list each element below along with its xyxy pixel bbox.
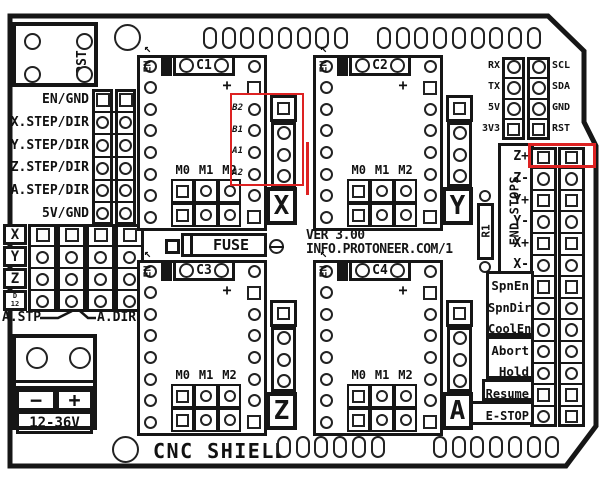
driver-C3-mode-label-M2: M2 bbox=[218, 369, 241, 381]
serial-cell-line bbox=[527, 77, 550, 79]
axis-label-box-X: X bbox=[266, 187, 297, 225]
endstop-label-X-: X- bbox=[500, 258, 529, 271]
endstop-cell-line bbox=[530, 275, 557, 277]
driver-C4-mode-pin bbox=[376, 390, 388, 402]
endstop-cell-line bbox=[530, 405, 557, 407]
endstop-label-X+: X+ bbox=[500, 237, 529, 250]
endstop-cell-line bbox=[558, 340, 585, 342]
pin-Y- bbox=[537, 215, 551, 229]
driver-C3-output-pin bbox=[277, 307, 290, 320]
driver-C1-pin-right bbox=[248, 189, 261, 202]
driver-C1-pin-right bbox=[247, 210, 261, 224]
mounting-hole-top bbox=[114, 24, 141, 51]
driver-C2-pin-left bbox=[320, 124, 333, 137]
jumper-cell-line bbox=[28, 267, 57, 269]
pin-CoolEn bbox=[537, 323, 551, 337]
reset-button-pad bbox=[24, 33, 41, 50]
reset-button-pad bbox=[24, 66, 41, 83]
power-terminal-block: − + 12-36V bbox=[12, 334, 97, 430]
pin-SpnEn bbox=[565, 280, 579, 294]
driver-C4-pin-right bbox=[424, 265, 437, 278]
driver-C3-mode-pin bbox=[200, 414, 212, 426]
jumper-pin bbox=[36, 295, 49, 308]
axis-label-box-Z: Z bbox=[266, 392, 297, 430]
driver-C3-header-bar: C3 bbox=[173, 260, 235, 281]
control-label-Hold: Hold bbox=[488, 366, 529, 379]
power-screw-terminal-1 bbox=[26, 347, 48, 369]
driver-header-pin bbox=[179, 263, 194, 278]
endstop-cell-line bbox=[558, 405, 585, 407]
control-label-E-STOP: E-STOP bbox=[470, 410, 529, 422]
driver-C4-output-pin bbox=[453, 353, 467, 367]
endstop-cell-line bbox=[530, 189, 557, 191]
driver-C1-enable-label: EN bbox=[139, 60, 158, 74]
jumper-row-label-Y: Y bbox=[3, 246, 27, 267]
driver-C3-output-pin bbox=[277, 374, 291, 388]
jumper-row-label-X: X bbox=[3, 224, 27, 245]
highlight-driver-c1-coil-pins bbox=[230, 93, 304, 186]
endstop-cell-line bbox=[530, 210, 557, 212]
driver-C2-output-pin bbox=[453, 102, 466, 115]
serial-label-RST: RST bbox=[552, 124, 584, 134]
driver-C2-mode-label-M0: M0 bbox=[347, 164, 370, 176]
solder-pad bbox=[471, 27, 485, 49]
driver-header-pin bbox=[214, 263, 229, 278]
jumper-pin bbox=[65, 228, 79, 242]
driver-C3-arrow-icon: ↖ bbox=[144, 247, 158, 259]
driver-C1-pin-left bbox=[144, 103, 157, 116]
jumper-row-label-Z: Z bbox=[3, 268, 27, 289]
control-label-SpnEn: SpnEn bbox=[488, 280, 529, 293]
solder-pad bbox=[545, 436, 559, 458]
endstop-cell-line bbox=[530, 254, 557, 256]
driver-C1-plus-label: + bbox=[219, 78, 235, 93]
mounting-hole-bottom bbox=[112, 436, 139, 463]
driver-C2-mode-pin bbox=[376, 209, 388, 221]
driver-id-label: C4 bbox=[372, 264, 388, 277]
driver-C4-pin-right bbox=[424, 373, 437, 386]
driver-C2-pin-left bbox=[320, 81, 333, 94]
driver-C4-output-pin bbox=[453, 331, 467, 345]
driver-C2-pin-right bbox=[424, 146, 437, 159]
solder-pad bbox=[508, 436, 522, 458]
driver-header-pin bbox=[355, 263, 370, 278]
cnc-shield-diagram: RST FUSE VER 3.00 INFO.PROTONEER.COM/1 −… bbox=[0, 0, 600, 500]
axis-label-box-A: A bbox=[442, 392, 473, 430]
driver-C3-pin-left bbox=[144, 351, 157, 364]
control-label-Resume: Resume bbox=[484, 388, 529, 400]
left-header-label-Z.STEP/DIR: Z.STEP/DIR bbox=[5, 161, 89, 174]
driver-C4-enable-label: EN bbox=[315, 265, 334, 279]
endstop-cell-line bbox=[558, 254, 585, 256]
driver-C2-header-bar: C2 bbox=[349, 55, 411, 76]
driver-C3-output-pin bbox=[277, 353, 291, 367]
jumper-cell-line bbox=[86, 267, 115, 269]
driver-header-pin bbox=[179, 58, 194, 73]
resistor-r1-label: R1 bbox=[480, 209, 492, 254]
serial-cell-line bbox=[527, 98, 550, 100]
driver-C2-pin-right bbox=[423, 210, 437, 224]
left-header-label-EN/GND: EN/GND bbox=[5, 93, 89, 106]
driver-C3-pin-left bbox=[144, 373, 157, 386]
board-title: CNC SHIELD bbox=[153, 441, 288, 461]
version-line1: VER 3.00 bbox=[306, 229, 453, 243]
driver-C2-pin-right bbox=[424, 189, 437, 202]
solder-pad bbox=[277, 436, 291, 458]
driver-C4-mode-label-M0: M0 bbox=[347, 369, 370, 381]
serial-label-3V3: 3V3 bbox=[470, 124, 500, 134]
solder-pad bbox=[377, 27, 391, 49]
driver-C4-mode-pin bbox=[400, 390, 412, 402]
endstop-cell-line bbox=[558, 318, 585, 320]
endstop-cell-line bbox=[558, 232, 585, 234]
solder-pad bbox=[527, 27, 541, 49]
pin-X+ bbox=[565, 237, 579, 251]
left-header-cell-line bbox=[92, 133, 136, 135]
driver-C2-mode-pin bbox=[376, 185, 388, 197]
serial-pin bbox=[532, 102, 546, 116]
driver-C2-pin-right bbox=[424, 60, 437, 73]
driver-C3-pin-right bbox=[248, 351, 261, 364]
jumper-pin bbox=[36, 228, 50, 242]
driver-C1-mode-pin bbox=[176, 185, 189, 198]
jumper-cell-line bbox=[57, 267, 86, 269]
driver-C1-pin-left bbox=[144, 189, 157, 202]
driver-C1-mode-pin bbox=[224, 209, 236, 221]
pin-Y- bbox=[565, 215, 579, 229]
driver-C4-pin-left bbox=[320, 286, 333, 299]
driver-C3-pin-left bbox=[144, 394, 157, 407]
driver-C3-mode-pin bbox=[176, 414, 189, 427]
solder-pad bbox=[333, 436, 347, 458]
jumper-cell-line bbox=[115, 245, 144, 247]
driver-C1-pin-left bbox=[144, 124, 157, 137]
solder-pad bbox=[433, 436, 447, 458]
jumper-pin bbox=[65, 251, 78, 264]
left-header-pin bbox=[119, 93, 133, 107]
endstop-cell-line bbox=[558, 275, 585, 277]
driver-header-pin bbox=[390, 58, 405, 73]
jumper-pin bbox=[123, 273, 136, 286]
jumper-pin bbox=[123, 295, 136, 308]
left-header-pin bbox=[96, 93, 110, 107]
serial-pin bbox=[507, 60, 521, 74]
driver-id-label: C1 bbox=[196, 59, 212, 72]
endstop-cell-line bbox=[558, 297, 585, 299]
driver-C3-pin-left bbox=[144, 286, 157, 299]
driver-C3-pin-right bbox=[247, 415, 261, 429]
solder-pad bbox=[452, 436, 466, 458]
driver-header-pin bbox=[355, 58, 370, 73]
driver-C2-pin-left bbox=[320, 168, 333, 181]
driver-C4-arrow-icon: ↖ bbox=[320, 247, 334, 259]
driver-C3-pin-right bbox=[247, 286, 261, 300]
driver-C1-enable-pad bbox=[161, 56, 172, 76]
pin-CoolEn bbox=[565, 323, 579, 337]
driver-C3-output-pin bbox=[277, 331, 291, 345]
driver-C4-mode-label-M1: M1 bbox=[370, 369, 393, 381]
driver-C2-mode-pin bbox=[352, 209, 365, 222]
endstop-label-Y-: Y- bbox=[500, 215, 529, 228]
driver-C4-mode-pin bbox=[352, 390, 365, 403]
driver-id-label: C3 bbox=[196, 264, 212, 277]
endstop-label-Z+: Z+ bbox=[500, 150, 529, 163]
driver-C2-mode-pin bbox=[400, 185, 412, 197]
fuse-body: FUSE bbox=[181, 233, 267, 257]
driver-C4-pin-left bbox=[320, 329, 333, 342]
driver-C4-mode-label-M2: M2 bbox=[394, 369, 417, 381]
driver-C2-pin-left bbox=[320, 189, 333, 202]
serial-cell-line bbox=[502, 98, 525, 100]
driver-C4-mode-pin bbox=[352, 414, 365, 427]
left-header-pin bbox=[119, 162, 132, 175]
driver-C4-output-pin bbox=[453, 374, 467, 388]
fuse-end-cap bbox=[190, 236, 193, 254]
serial-label-SCL: SCL bbox=[552, 61, 584, 71]
jumper-pin bbox=[36, 251, 49, 264]
endstop-cell-line bbox=[558, 189, 585, 191]
solder-pad bbox=[259, 27, 273, 49]
driver-header-pin bbox=[214, 58, 229, 73]
serial-pin bbox=[532, 123, 545, 136]
solder-pad bbox=[203, 27, 217, 49]
jumper-pin bbox=[94, 251, 107, 264]
serial-pin bbox=[507, 81, 521, 95]
solder-pad bbox=[489, 27, 503, 49]
control-label-SpnDir: SpnDir bbox=[488, 302, 529, 314]
serial-label-SDA: SDA bbox=[552, 82, 584, 92]
serial-cell-line bbox=[502, 77, 525, 79]
power-plus-label: + bbox=[56, 389, 93, 411]
driver-C2-arrow-icon: ↖ bbox=[320, 42, 334, 54]
pin-Y+ bbox=[565, 194, 579, 208]
driver-id-label: C2 bbox=[372, 59, 388, 72]
driver-C3-mode-pin bbox=[176, 390, 189, 403]
driver-C1-pin-left bbox=[144, 146, 157, 159]
endstop-cell-line bbox=[558, 210, 585, 212]
driver-C1-mode-label-M0: M0 bbox=[171, 164, 194, 176]
endstop-cell-line bbox=[530, 232, 557, 234]
endstop-cell-line bbox=[530, 362, 557, 364]
serial-pin bbox=[532, 81, 546, 95]
serial-label-TX: TX bbox=[470, 82, 500, 92]
solder-pad bbox=[527, 436, 541, 458]
driver-C2-mode-pin bbox=[352, 185, 365, 198]
driver-C4-pin-right bbox=[424, 308, 437, 321]
driver-C3-pin-right bbox=[248, 373, 261, 386]
driver-C1-pin-right bbox=[248, 60, 261, 73]
driver-C3-pin-right bbox=[248, 265, 261, 278]
driver-C4-output-pin bbox=[453, 307, 466, 320]
left-header-cell-line bbox=[92, 201, 136, 203]
driver-C3-enable-pad bbox=[161, 261, 172, 281]
driver-C3-mode-label-M0: M0 bbox=[171, 369, 194, 381]
solder-pad bbox=[278, 27, 292, 49]
pin-X+ bbox=[537, 237, 551, 251]
driver-C4-plus-label: + bbox=[395, 283, 411, 298]
driver-C4-pin-right bbox=[423, 286, 437, 300]
driver-C3-pin-right bbox=[248, 308, 261, 321]
driver-C1-pin-left bbox=[144, 81, 157, 94]
driver-C2-pin-left bbox=[320, 103, 333, 116]
driver-C2-output-pin bbox=[453, 148, 467, 162]
solder-pad bbox=[452, 27, 466, 49]
driver-C3-pin-right bbox=[248, 329, 261, 342]
pin-Y+ bbox=[537, 194, 551, 208]
driver-C4-header-bar: C4 bbox=[349, 260, 411, 281]
driver-C1-pin-left bbox=[144, 211, 157, 224]
pin-E-STOP bbox=[565, 410, 579, 424]
control-label-CoolEn: CoolEn bbox=[488, 323, 529, 335]
pin-Resume bbox=[537, 388, 551, 402]
driver-C3-pin-right bbox=[248, 394, 261, 407]
left-header-cell-line bbox=[92, 111, 136, 113]
resistor-r1-pad-top bbox=[479, 190, 491, 202]
driver-C4-pin-right bbox=[424, 351, 437, 364]
endstop-cell-line bbox=[530, 297, 557, 299]
serial-pin bbox=[507, 102, 521, 116]
driver-C2-mode-pin bbox=[400, 209, 412, 221]
endstop-cell-line bbox=[558, 362, 585, 364]
jumper-pin bbox=[123, 251, 136, 264]
endstops-title: END STOPS bbox=[508, 146, 521, 276]
fuse-terminal-line bbox=[269, 246, 284, 249]
driver-C4-pin-right bbox=[423, 415, 437, 429]
left-header-label-A.STEP/DIR: A.STEP/DIR bbox=[5, 184, 89, 197]
power-voltage-label: 12-36V bbox=[16, 411, 93, 434]
pin-Resume bbox=[565, 388, 579, 402]
left-header-cell-line bbox=[92, 156, 136, 158]
driver-C3-mode-pin bbox=[224, 414, 236, 426]
serial-pin bbox=[532, 60, 546, 74]
a-step-jumper-label: A.STP bbox=[2, 311, 41, 324]
solder-pad bbox=[314, 436, 328, 458]
solder-pad bbox=[489, 436, 503, 458]
solder-pad bbox=[396, 27, 410, 49]
axis-label-box-Y: Y bbox=[442, 187, 473, 225]
jumper-row-label-D12: D12 bbox=[3, 290, 27, 311]
jumper-pin bbox=[36, 273, 49, 286]
left-header-label-5V/GND: 5V/GND bbox=[5, 207, 89, 220]
serial-pin bbox=[507, 123, 520, 136]
jumper-cell-line bbox=[28, 289, 57, 291]
driver-C2-mode-label-M2: M2 bbox=[394, 164, 417, 176]
fuse-terminal-ring bbox=[269, 239, 284, 254]
driver-C1-header-bar: C1 bbox=[173, 55, 235, 76]
jumper-cell-line bbox=[57, 245, 86, 247]
driver-C3-enable-label: EN bbox=[139, 265, 158, 279]
driver-C3-mode-pin bbox=[200, 390, 212, 402]
jumper-cell-line bbox=[57, 289, 86, 291]
endstop-label-Z-: Z- bbox=[500, 172, 529, 185]
left-header-pin bbox=[96, 162, 109, 175]
driver-C4-mode-pin bbox=[376, 414, 388, 426]
driver-C2-pin-right bbox=[424, 103, 437, 116]
jumper-cell-line bbox=[28, 245, 57, 247]
solder-pad bbox=[433, 27, 447, 49]
serial-label-5V: 5V bbox=[470, 103, 500, 113]
left-header-cell-line bbox=[92, 179, 136, 181]
driver-C2-output-pin bbox=[453, 126, 467, 140]
jumper-pin bbox=[65, 295, 78, 308]
jumper-cell-line bbox=[86, 245, 115, 247]
driver-C4-enable-pad bbox=[337, 261, 348, 281]
endstop-label-Y+: Y+ bbox=[500, 194, 529, 207]
reset-button: RST bbox=[12, 22, 98, 87]
jumper-pin bbox=[123, 228, 137, 242]
serial-cell-line bbox=[502, 118, 525, 120]
fuse-pad-left bbox=[165, 239, 180, 254]
highlight-endstop-z-plus bbox=[528, 143, 596, 168]
jumper-pin bbox=[94, 228, 108, 242]
jumper-pin bbox=[65, 273, 78, 286]
driver-C2-plus-label: + bbox=[395, 78, 411, 93]
solder-pad bbox=[334, 27, 348, 49]
solder-pad bbox=[470, 436, 484, 458]
driver-C3-mode-pin bbox=[224, 390, 236, 402]
serial-label-GND: GND bbox=[552, 103, 584, 113]
endstop-cell-line bbox=[558, 383, 585, 385]
solder-pad bbox=[240, 27, 254, 49]
driver-C3-pin-left bbox=[144, 329, 157, 342]
serial-label-RX: RX bbox=[470, 61, 500, 71]
driver-C1-pin-left bbox=[144, 168, 157, 181]
driver-C2-pin-right bbox=[424, 124, 437, 137]
power-screw-terminal-2 bbox=[69, 347, 91, 369]
solder-pad bbox=[352, 436, 366, 458]
driver-C4-pin-left bbox=[320, 308, 333, 321]
driver-C3-pin-left bbox=[144, 416, 157, 429]
solder-pad bbox=[414, 27, 428, 49]
jumper-pin bbox=[94, 295, 107, 308]
solder-pad bbox=[222, 27, 236, 49]
driver-header-pin bbox=[390, 263, 405, 278]
jumper-cell-line bbox=[86, 289, 115, 291]
solder-pad bbox=[297, 27, 311, 49]
jumper-pin bbox=[94, 273, 107, 286]
endstop-cell-line bbox=[530, 318, 557, 320]
driver-C1-mode-pin bbox=[176, 209, 189, 222]
driver-C4-pin-left bbox=[320, 373, 333, 386]
solder-pad bbox=[371, 436, 385, 458]
driver-C4-pin-left bbox=[320, 416, 333, 429]
control-label-Abort: Abort bbox=[488, 345, 529, 358]
pin-Z- bbox=[537, 172, 551, 186]
highlight-vertical-line bbox=[306, 142, 309, 195]
reset-button-pad bbox=[76, 33, 93, 50]
solder-pad bbox=[508, 27, 522, 49]
pin-Z- bbox=[565, 172, 579, 186]
power-minus-label: − bbox=[16, 389, 56, 411]
driver-C1-mode-label-M1: M1 bbox=[194, 164, 217, 176]
driver-C4-mode-pin bbox=[400, 414, 412, 426]
solder-pad bbox=[296, 436, 310, 458]
driver-C3-mode-label-M1: M1 bbox=[194, 369, 217, 381]
reset-button-pad bbox=[76, 66, 93, 83]
serial-cell-line bbox=[527, 118, 550, 120]
endstop-cell-line bbox=[530, 340, 557, 342]
fuse-label: FUSE bbox=[196, 238, 266, 253]
left-header-label-X.STEP/DIR: X.STEP/DIR bbox=[5, 116, 89, 129]
driver-C2-output-pin bbox=[453, 169, 467, 183]
driver-C2-mode-label-M1: M1 bbox=[370, 164, 393, 176]
driver-C4-pin-left bbox=[320, 351, 333, 364]
driver-C4-pin-right bbox=[424, 329, 437, 342]
driver-C1-arrow-icon: ↖ bbox=[144, 42, 158, 54]
driver-C2-pin-left bbox=[320, 146, 333, 159]
left-header-label-Y.STEP/DIR: Y.STEP/DIR bbox=[5, 139, 89, 152]
driver-C3-plus-label: + bbox=[219, 283, 235, 298]
